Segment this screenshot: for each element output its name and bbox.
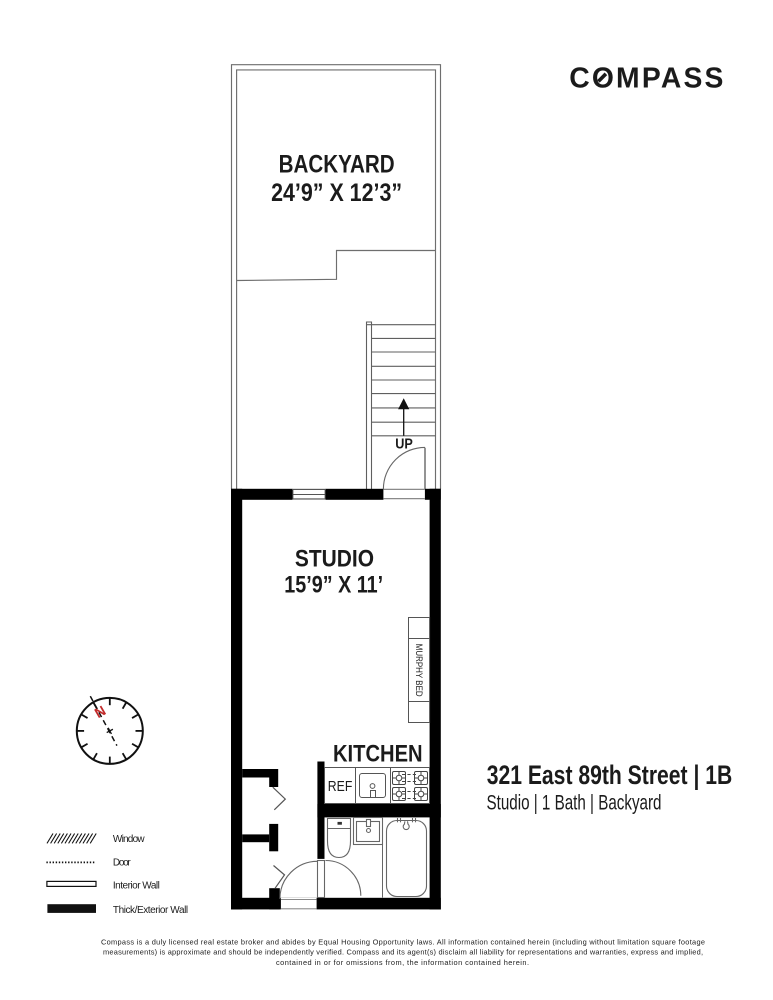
- svg-text:24’9” X 12’3”: 24’9” X 12’3”: [271, 179, 402, 207]
- svg-text:15’9” X 11’: 15’9” X 11’: [284, 572, 383, 599]
- svg-text:measurements) is approximate: measurements) is approximate and should …: [103, 948, 703, 957]
- svg-text:COMPASS: COMPASS: [569, 61, 723, 93]
- svg-text:Window: Window: [113, 834, 145, 845]
- svg-text:MURPHY BED: MURPHY BED: [413, 644, 424, 697]
- svg-text:Interior Wall: Interior Wall: [113, 880, 160, 891]
- svg-text:BACKYARD: BACKYARD: [279, 151, 395, 179]
- svg-text:Thick/Exterior Wall: Thick/Exterior Wall: [113, 905, 188, 916]
- svg-text:KITCHEN: KITCHEN: [333, 741, 423, 768]
- svg-text:STUDIO: STUDIO: [295, 546, 374, 573]
- svg-text:Door: Door: [113, 858, 131, 869]
- svg-text:321 East 89th Street | 1B: 321 East 89th Street | 1B: [487, 760, 733, 790]
- svg-text:Compass is a duly licensed rea: Compass is a duly licensed real estate b…: [101, 937, 705, 946]
- svg-text:Studio | 1 Bath | Backyard: Studio | 1 Bath | Backyard: [487, 792, 662, 815]
- svg-text:contained in or for omissions: contained in or for omissions from, the …: [276, 958, 529, 967]
- svg-text:REF: REF: [328, 779, 353, 795]
